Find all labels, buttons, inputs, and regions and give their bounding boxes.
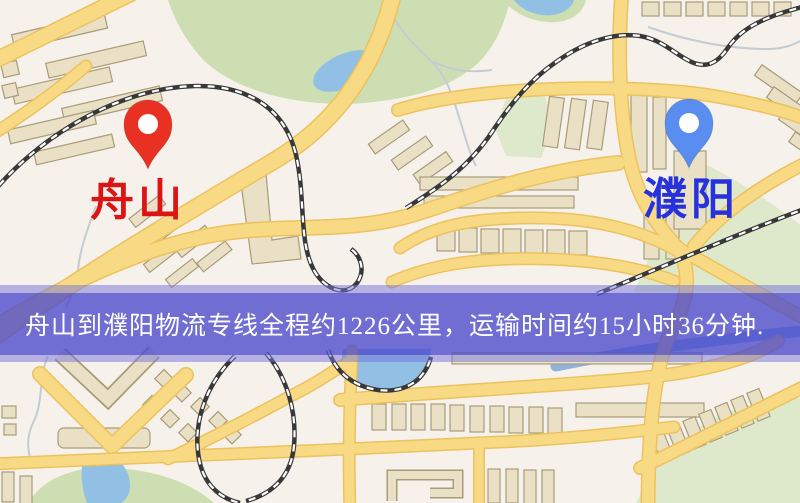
map-image: [0, 0, 800, 503]
destination-label: 濮阳: [643, 178, 739, 222]
origin-pin-icon[interactable]: [124, 100, 172, 169]
route-info-banner: 舟山到濮阳物流专线全程约1226公里，运输时间约15小时36分钟.: [0, 285, 800, 362]
map-canvas[interactable]: 舟山 濮阳 舟山到濮阳物流专线全程约1226公里，运输时间约15小时36分钟.: [0, 0, 800, 503]
origin-label: 舟山: [90, 179, 186, 223]
route-info-text: 舟山到濮阳物流专线全程约1226公里，运输时间约15小时36分钟.: [25, 298, 800, 350]
